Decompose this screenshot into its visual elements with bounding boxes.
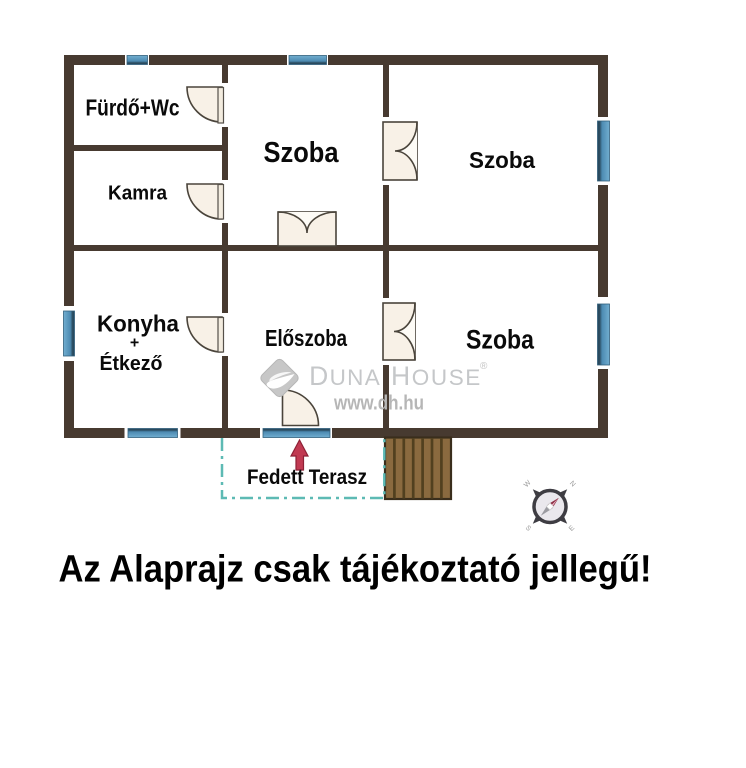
svg-text:www.dh.hu: www.dh.hu [333, 393, 424, 415]
svg-text:Konyha: Konyha [97, 311, 179, 337]
svg-text:Fürdő+Wc: Fürdő+Wc [86, 95, 180, 121]
svg-text:®: ® [480, 361, 488, 372]
svg-text:E: E [568, 524, 576, 532]
svg-text:N: N [568, 480, 577, 489]
svg-text:Szoba: Szoba [469, 147, 536, 173]
svg-text:Kamra: Kamra [108, 182, 168, 205]
svg-text:Fedett Terasz: Fedett Terasz [247, 466, 367, 489]
svg-text:Szoba: Szoba [264, 137, 340, 169]
svg-text:DUNA: DUNA [309, 361, 381, 391]
svg-text:Étkező: Étkező [100, 352, 163, 375]
svg-text:+: + [130, 335, 139, 352]
svg-text:W: W [523, 479, 533, 489]
svg-text:HOUSE: HOUSE [391, 361, 482, 391]
svg-text:Szoba: Szoba [466, 325, 534, 355]
svg-text:Előszoba: Előszoba [265, 325, 348, 351]
svg-text:Az Alaprajz csak tájékoztató j: Az Alaprajz csak tájékoztató jellegű! [59, 549, 652, 591]
svg-text:S: S [524, 524, 532, 532]
